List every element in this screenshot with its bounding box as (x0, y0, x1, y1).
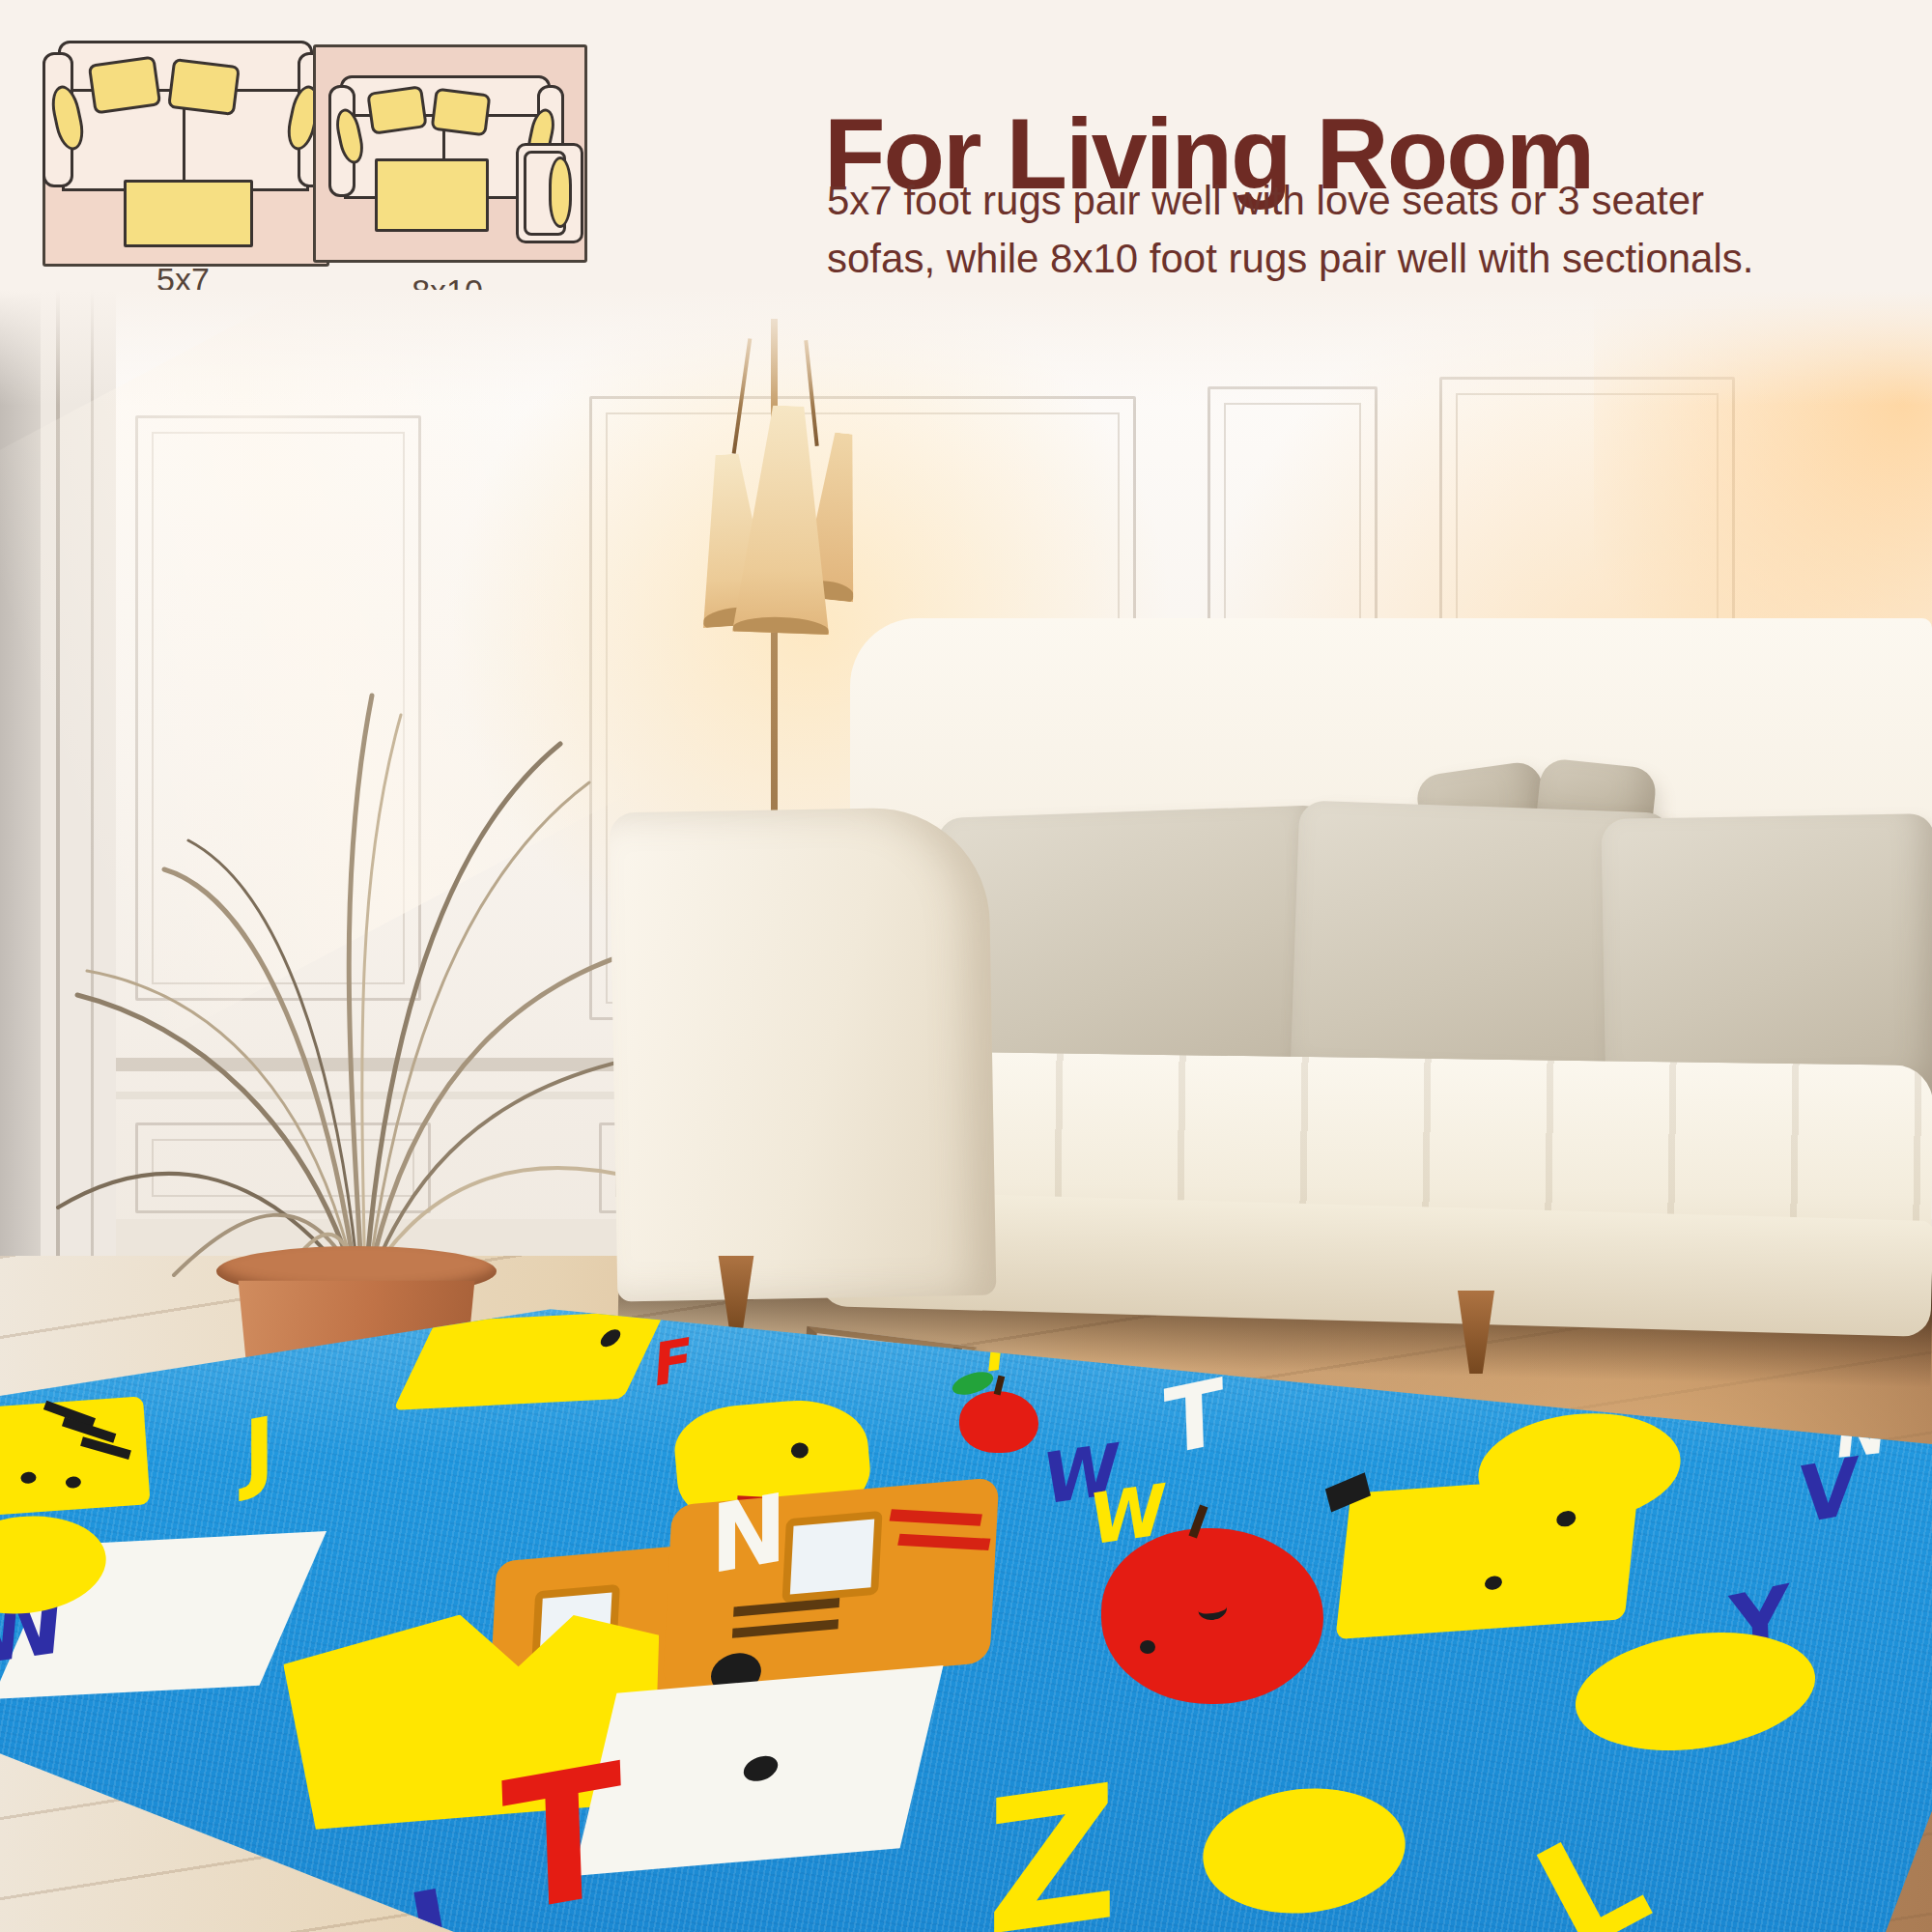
rug-letter-j-yellow: J (243, 1405, 274, 1496)
diagram-5x7-pillow (88, 55, 162, 114)
rug-letter-f-red: F (651, 1329, 695, 1396)
rug-letter-v-navy: V (1798, 1447, 1860, 1536)
rug-letter-n-white-mid: N (711, 1480, 787, 1587)
tiger-face-icon (0, 1396, 151, 1517)
chick-eye (597, 1329, 623, 1348)
bus-window (781, 1511, 882, 1603)
diagram-8x10-pillow (366, 85, 428, 135)
giraffe-eye (1555, 1510, 1577, 1527)
square-dot (741, 1754, 781, 1782)
giraffe-nostril (1484, 1576, 1502, 1590)
page-subtitle: 5x7 foot rugs pair well with love seats … (827, 172, 1928, 288)
duck-eye (790, 1442, 809, 1460)
diagram-8x10-pillow (431, 88, 492, 137)
rug-letter-t-white: T (1163, 1367, 1226, 1469)
circle-yellow-bottom (1197, 1778, 1411, 1922)
photo-top-fade (0, 290, 1932, 406)
apple-dot (1140, 1640, 1155, 1654)
giraffe-ear (1325, 1472, 1371, 1512)
tiger-eye (66, 1476, 82, 1489)
diagram-5x7-pillow (167, 58, 241, 116)
white-square-dot-icon (573, 1665, 943, 1876)
apple-big-icon (1101, 1505, 1333, 1704)
diagram-8x10-coffee-table (375, 158, 489, 232)
diagram-5x7-coffee-table (124, 180, 253, 247)
diagram-8x10-armchair-pillow (549, 156, 572, 228)
apple-body (959, 1391, 1038, 1453)
rug-letter-l-yellow: L (1517, 1803, 1666, 1932)
living-room-photo: F F N J W W T (0, 290, 1932, 1932)
product-infographic: For Living Room 5x7 foot rugs pair well … (0, 0, 1932, 1932)
sofa-armrest (610, 807, 997, 1302)
giraffe-face-icon (1335, 1473, 1639, 1639)
tiger-eye (20, 1471, 37, 1484)
subtitle-line-1: 5x7 foot rugs pair well with love seats … (827, 172, 1928, 230)
rug-letter-t-red: T (500, 1739, 627, 1932)
rug-letter-z-yellow: Z (986, 1759, 1118, 1932)
apple-small-icon (952, 1374, 1044, 1453)
subtitle-line-2: sofas, while 8x10 foot rugs pair well wi… (827, 230, 1928, 288)
